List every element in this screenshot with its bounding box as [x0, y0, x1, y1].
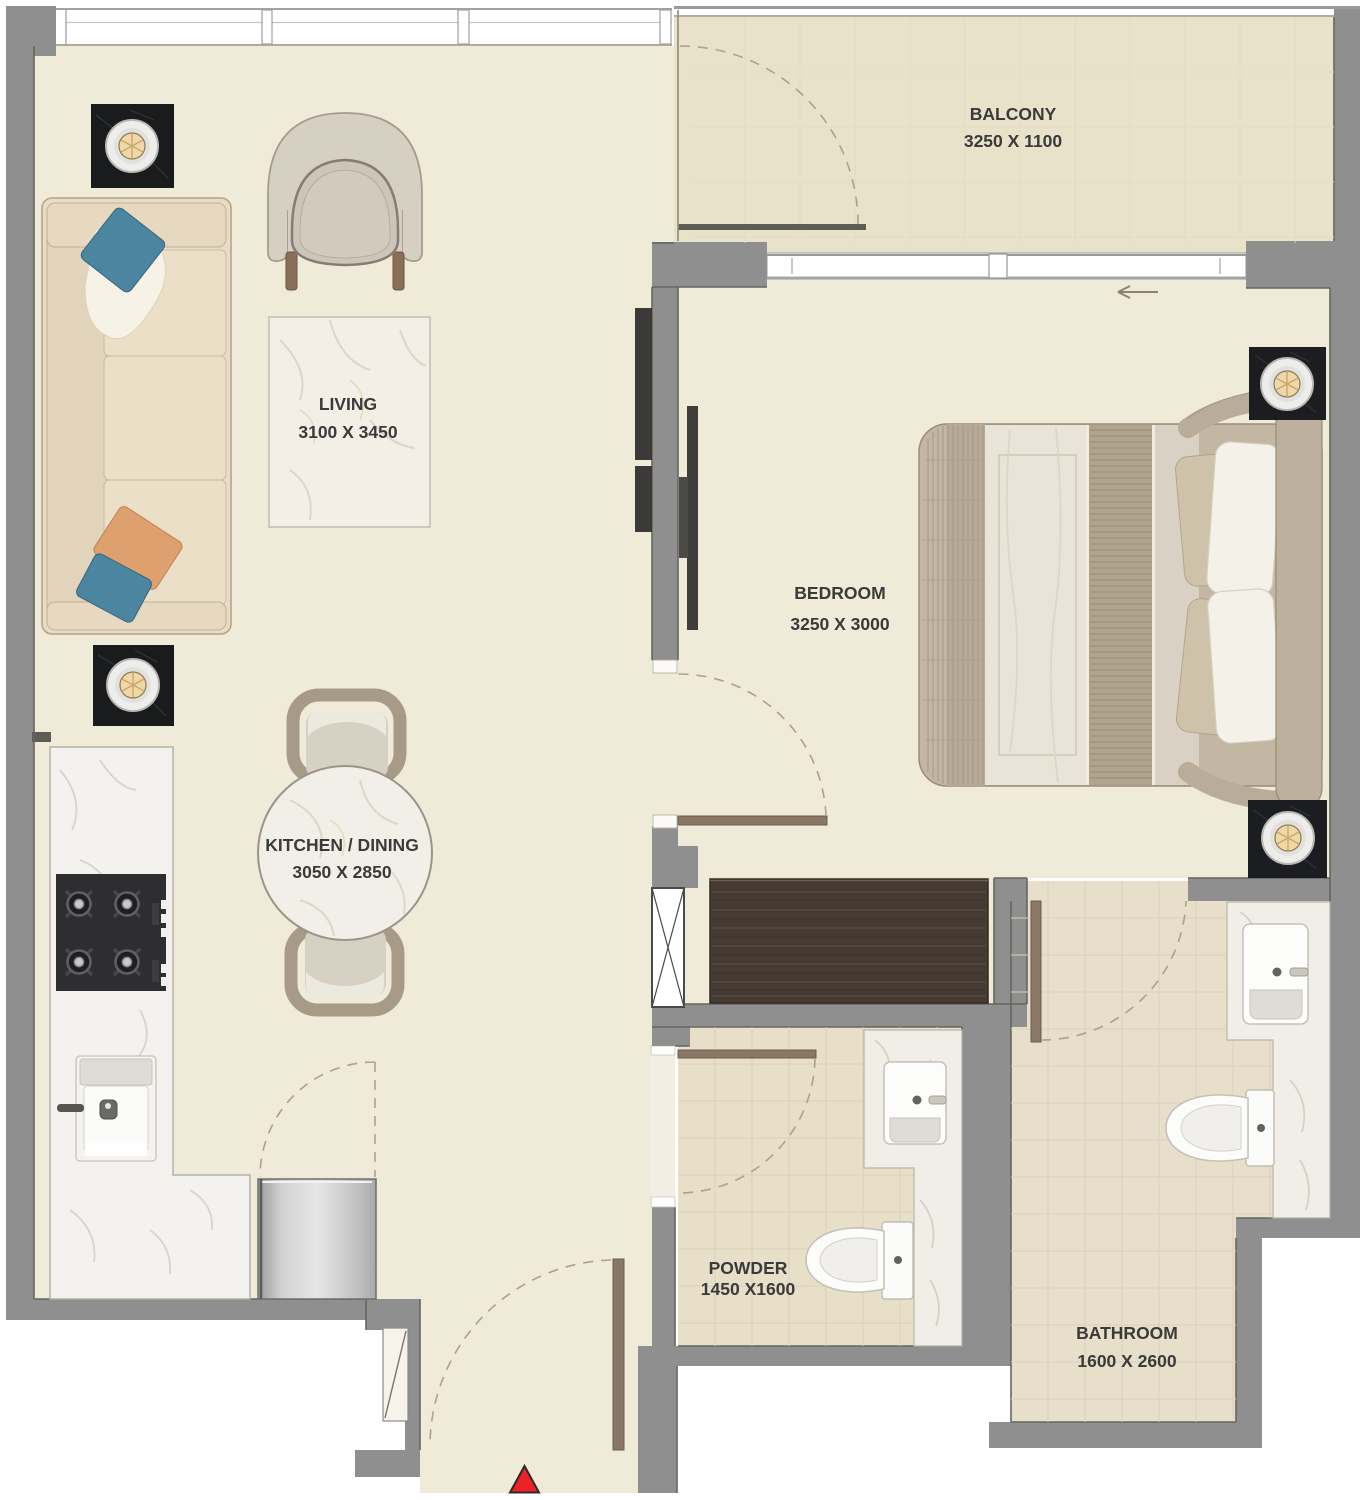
svg-text:3250 X 3000: 3250 X 3000 [790, 614, 890, 634]
svg-text:BEDROOM: BEDROOM [794, 583, 885, 603]
svg-text:POWDER: POWDER [709, 1258, 788, 1278]
svg-text:1450 X1600: 1450 X1600 [701, 1279, 796, 1299]
svg-text:KITCHEN / DINING: KITCHEN / DINING [265, 835, 419, 855]
svg-text:3250 X 1100: 3250 X 1100 [964, 131, 1063, 151]
svg-text:BATHROOM: BATHROOM [1076, 1323, 1178, 1343]
svg-text:BALCONY: BALCONY [970, 104, 1057, 124]
svg-text:3050 X 2850: 3050 X 2850 [292, 862, 392, 882]
svg-text:LIVING: LIVING [319, 394, 377, 414]
svg-text:3100 X 3450: 3100 X 3450 [298, 422, 398, 442]
svg-text:1600 X 2600: 1600 X 2600 [1077, 1351, 1177, 1371]
